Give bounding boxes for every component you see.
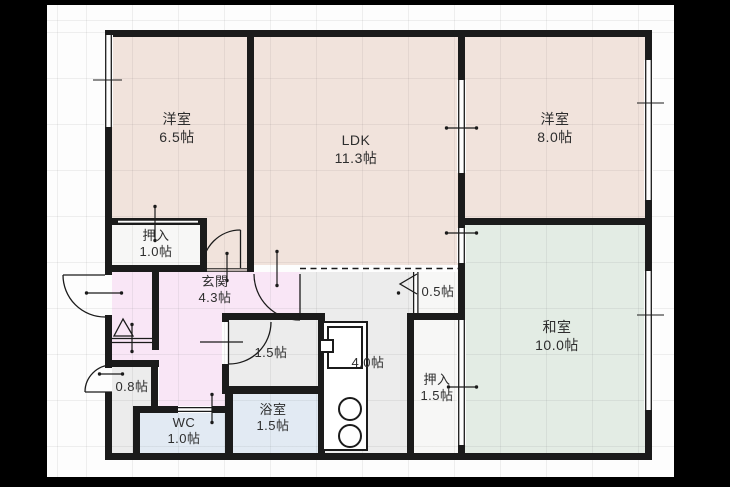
label-closet1: 押入1.0帖 <box>101 228 211 260</box>
window-east-japanese <box>637 271 664 410</box>
window-west-western1 <box>93 35 122 127</box>
sliding-door-ldk-western2 <box>445 80 478 173</box>
label-storage08: 0.8帖 <box>77 379 187 395</box>
label-closet2: 押入1.5帖 <box>382 372 492 404</box>
floor-plan-canvas: 洋室6.5帖 LDK11.3帖 洋室8.0帖 和室10.0帖 押入1.0帖 玄関… <box>0 0 730 487</box>
label-western1: 洋室6.5帖 <box>122 110 232 146</box>
door-entrance <box>63 275 105 317</box>
label-bath: 浴室1.5帖 <box>218 402 328 434</box>
stove-burner-2 <box>339 425 361 447</box>
label-western2: 洋室8.0帖 <box>500 110 610 146</box>
sliding-door-ldk-japanese <box>445 228 478 263</box>
label-washroom: 1.5帖 <box>216 345 326 361</box>
label-kitchen: 4.0帖 <box>313 355 423 371</box>
stove-burner-1 <box>339 398 361 420</box>
window-east-western2 <box>637 60 664 200</box>
label-closet05: 0.5帖 <box>383 284 493 300</box>
label-japanese: 和室10.0帖 <box>502 318 612 354</box>
label-entrance: 玄関4.3帖 <box>160 274 270 306</box>
label-ldk: LDK11.3帖 <box>301 131 411 167</box>
